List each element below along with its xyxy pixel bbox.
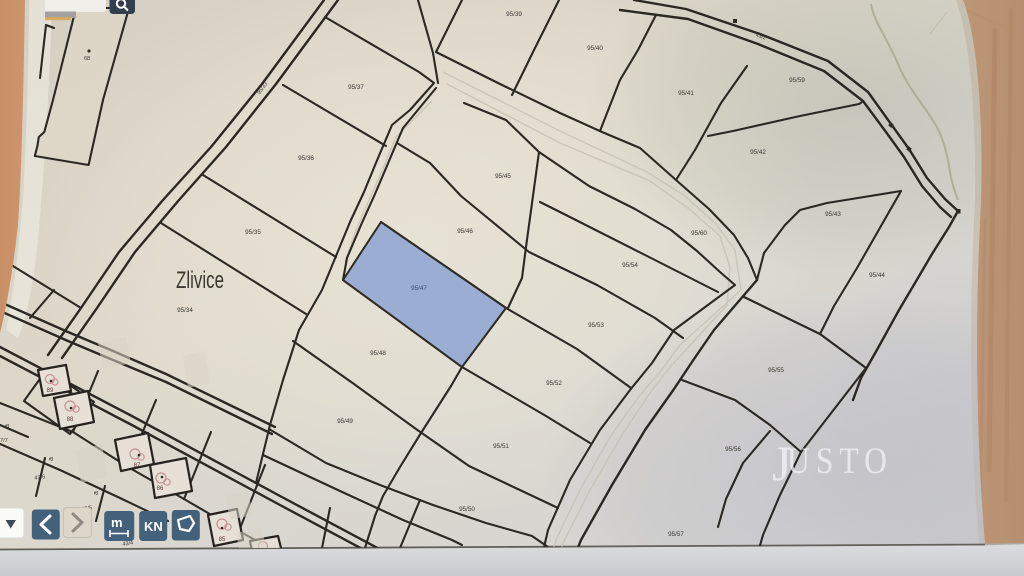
- svg-text:95/49: 95/49: [337, 418, 353, 425]
- svg-text:95/42: 95/42: [750, 149, 766, 156]
- svg-text:95/48: 95/48: [370, 350, 386, 357]
- svg-text:88: 88: [67, 417, 74, 423]
- svg-text:KN: KN: [144, 519, 163, 534]
- svg-text:95/60: 95/60: [691, 230, 707, 237]
- svg-text:7/7: 7/7: [0, 438, 8, 444]
- svg-text:68: 68: [84, 56, 90, 62]
- svg-text:95/45: 95/45: [495, 173, 511, 180]
- svg-text:87: 87: [134, 463, 141, 469]
- svg-text:95/46: 95/46: [457, 228, 473, 235]
- svg-text:95/54: 95/54: [622, 262, 638, 269]
- svg-text:95/52: 95/52: [546, 380, 562, 387]
- svg-text:86: 86: [157, 486, 164, 492]
- svg-text:95/44: 95/44: [869, 272, 885, 279]
- svg-text:95/59: 95/59: [789, 77, 805, 84]
- svg-text:a: a: [4, 424, 11, 428]
- svg-text:95/56: 95/56: [725, 446, 741, 453]
- svg-text:95/37: 95/37: [348, 84, 364, 91]
- svg-text:m: m: [111, 515, 123, 530]
- svg-text:95/41: 95/41: [678, 90, 694, 97]
- svg-text:95/53: 95/53: [588, 322, 604, 329]
- svg-text:a: a: [93, 491, 100, 495]
- svg-text:95/50: 95/50: [459, 506, 475, 513]
- svg-text:95/57: 95/57: [668, 531, 684, 538]
- svg-text:95/40: 95/40: [587, 45, 603, 52]
- svg-text:95/47: 95/47: [411, 285, 427, 292]
- svg-text:Zlivice: Zlivice: [176, 267, 224, 294]
- svg-text:95/36: 95/36: [298, 155, 314, 162]
- svg-text:95/34: 95/34: [177, 307, 193, 314]
- svg-text:95/55: 95/55: [768, 367, 784, 374]
- svg-text:95/43: 95/43: [825, 211, 841, 218]
- svg-text:a: a: [48, 457, 55, 461]
- svg-text:95/39: 95/39: [506, 11, 522, 18]
- svg-text:USTO: USTO: [787, 441, 893, 482]
- svg-text:95/35: 95/35: [245, 229, 261, 236]
- svg-text:89: 89: [47, 388, 54, 394]
- svg-text:95/51: 95/51: [493, 443, 509, 450]
- svg-text:85: 85: [219, 537, 226, 543]
